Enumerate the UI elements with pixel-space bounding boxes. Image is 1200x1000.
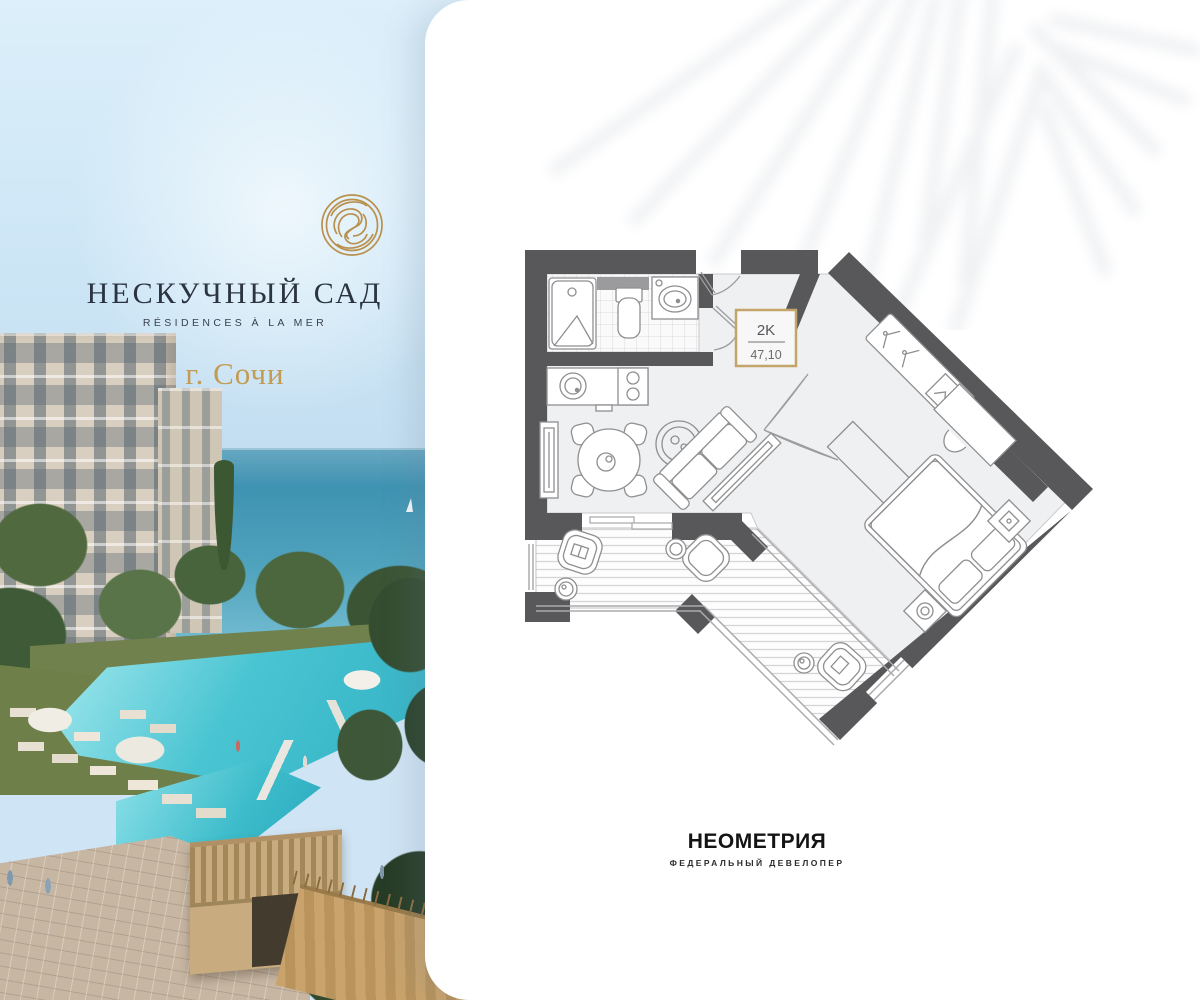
developer-descriptor: ФЕДЕРАЛЬНЫЙ ДЕВЕЛОПЕР bbox=[617, 858, 897, 868]
terrace-side-table-icon bbox=[794, 653, 814, 673]
floor-plan-card: 2K 47,10 НЕОМЕТРИЯ ФЕДЕРАЛЬНЫЙ ДЕВЕЛОПЕР bbox=[425, 0, 1200, 1000]
terrace-side-table-icon bbox=[555, 578, 577, 600]
brand-tagline: RÉSIDENCES À LA MER bbox=[0, 317, 470, 329]
shower-icon bbox=[549, 278, 596, 349]
sailboat bbox=[406, 498, 413, 512]
brand-name: НЕСКУЧНЫЙ САД bbox=[0, 277, 470, 311]
floor-plan-drawing: 2K 47,10 bbox=[510, 230, 1110, 770]
unit-area: 47,10 bbox=[750, 348, 781, 362]
dining-set bbox=[570, 422, 648, 499]
window-sills bbox=[590, 517, 672, 529]
kitchen-sink-icon bbox=[560, 373, 586, 399]
kitchen-cabinet-tab bbox=[596, 405, 612, 411]
wall-bathroom-bottom bbox=[547, 352, 713, 366]
stove-icon bbox=[618, 368, 648, 405]
terrace-side-table-icon bbox=[666, 539, 686, 559]
brand-block: НЕСКУЧНЫЙ САД RÉSIDENCES À LA MER bbox=[0, 190, 470, 329]
developer-name: НЕОМЕТРИЯ bbox=[617, 830, 897, 854]
unit-type: 2K bbox=[757, 322, 775, 339]
sink-icon bbox=[652, 277, 698, 319]
brand-logo-icon bbox=[317, 190, 387, 260]
wall-top-entry bbox=[741, 250, 818, 274]
hero-photo: НЕСКУЧНЫЙ САД RÉSIDENCES À LA MER г. Соч… bbox=[0, 0, 470, 1000]
unit-label: 2K 47,10 bbox=[736, 310, 796, 366]
dining-table-icon bbox=[578, 429, 640, 491]
tall-cabinet bbox=[540, 422, 558, 498]
people bbox=[0, 700, 470, 1000]
developer-logo: НЕОМЕТРИЯ ФЕДЕРАЛЬНЫЙ ДЕВЕЛОПЕР bbox=[617, 830, 897, 868]
city-label: г. Сочи bbox=[0, 356, 470, 392]
toilet-icon bbox=[616, 288, 642, 338]
